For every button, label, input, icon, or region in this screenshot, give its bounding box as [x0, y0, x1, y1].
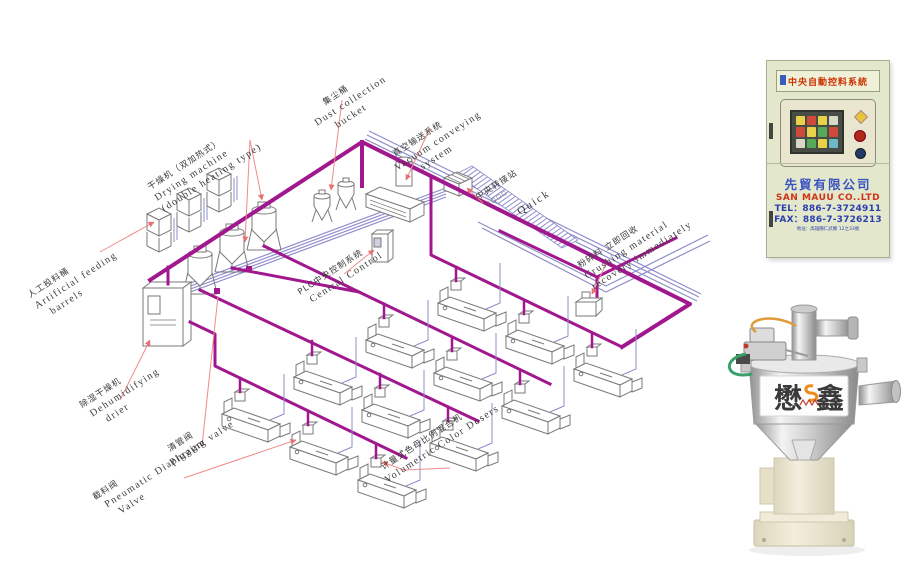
dust-cyclone [336, 178, 356, 210]
dust-cyclone [312, 190, 332, 222]
company-name-en: SAN MAUU CO..LTD [767, 193, 889, 204]
company-block: 先貿有限公司 SAN MAUU CO..LTD TEL：886-7-372491… [767, 177, 889, 233]
cabinet-title: 中央自動控料系統 [788, 75, 868, 88]
base-flange [754, 520, 854, 546]
hmi-screen [790, 110, 844, 154]
central-conveying-system-page: 人工投料桶 Artificial feeding barrels 干燥机（双加热… [0, 0, 912, 562]
feeding-barrel [147, 208, 177, 252]
label-dust-collection: 集尘桶 Dust collection bucket [306, 63, 396, 139]
brand-char-right: 鑫 [816, 382, 844, 415]
base-column [774, 458, 834, 514]
brand-mark-icon [780, 75, 786, 85]
hopper-receiver-photo: 懋 鑫 [712, 302, 912, 560]
control-cabinet-photo: 中央自動控料系統 先貿有限公司 SAN MAUU CO..LTD TEL：886… [766, 60, 890, 258]
label-drying-machine: 干燥机（双加热式） Drying machine (double heating… [146, 120, 264, 215]
label-diaphragm-valve: 截料阀 Pneumatic Diaphragm Valve [91, 426, 215, 525]
lid-clamp [857, 358, 867, 372]
door-seam [767, 163, 889, 164]
label-dehumidifying: 除湿干燥机 Dehumidifying drier [78, 355, 169, 432]
label-feeding-barrels: 人工投料桶 Artificial feeding barrels [26, 239, 127, 322]
touch-panel [780, 99, 876, 167]
drying-hopper [215, 224, 249, 272]
indicator-yellow [854, 110, 868, 124]
label-en: Pneumatic Diaphragm [103, 437, 208, 511]
pigging-valve-glyph [214, 288, 220, 294]
hopper-receiver: 懋 鑫 [729, 305, 900, 556]
company-address: 地址：高雄縣仁武鄉 12之33號 [773, 227, 883, 233]
hinge [769, 123, 773, 139]
company-tel: TEL：886-7-3724911 [767, 204, 889, 215]
cabinet-title-plate: 中央自動控料系統 [776, 70, 880, 92]
inlet-elbow [816, 320, 850, 336]
brand-char-left: 懋 [774, 382, 802, 415]
system-diagram: 人工投料桶 Artificial feeding barrels 干燥机（双加热… [0, 0, 740, 562]
company-name-zh: 先貿有限公司 [767, 177, 889, 193]
indicator-blue [855, 148, 866, 159]
side-outlet-pipe [859, 381, 896, 405]
drying-hopper [247, 202, 281, 250]
dehumidifying-drier [143, 282, 191, 346]
brand-plate: 懋 鑫 [760, 376, 848, 416]
company-fax: FAX：886-7-3726213 [767, 215, 889, 226]
power-button-red [854, 130, 866, 142]
pigging-valve-glyph [246, 266, 252, 272]
